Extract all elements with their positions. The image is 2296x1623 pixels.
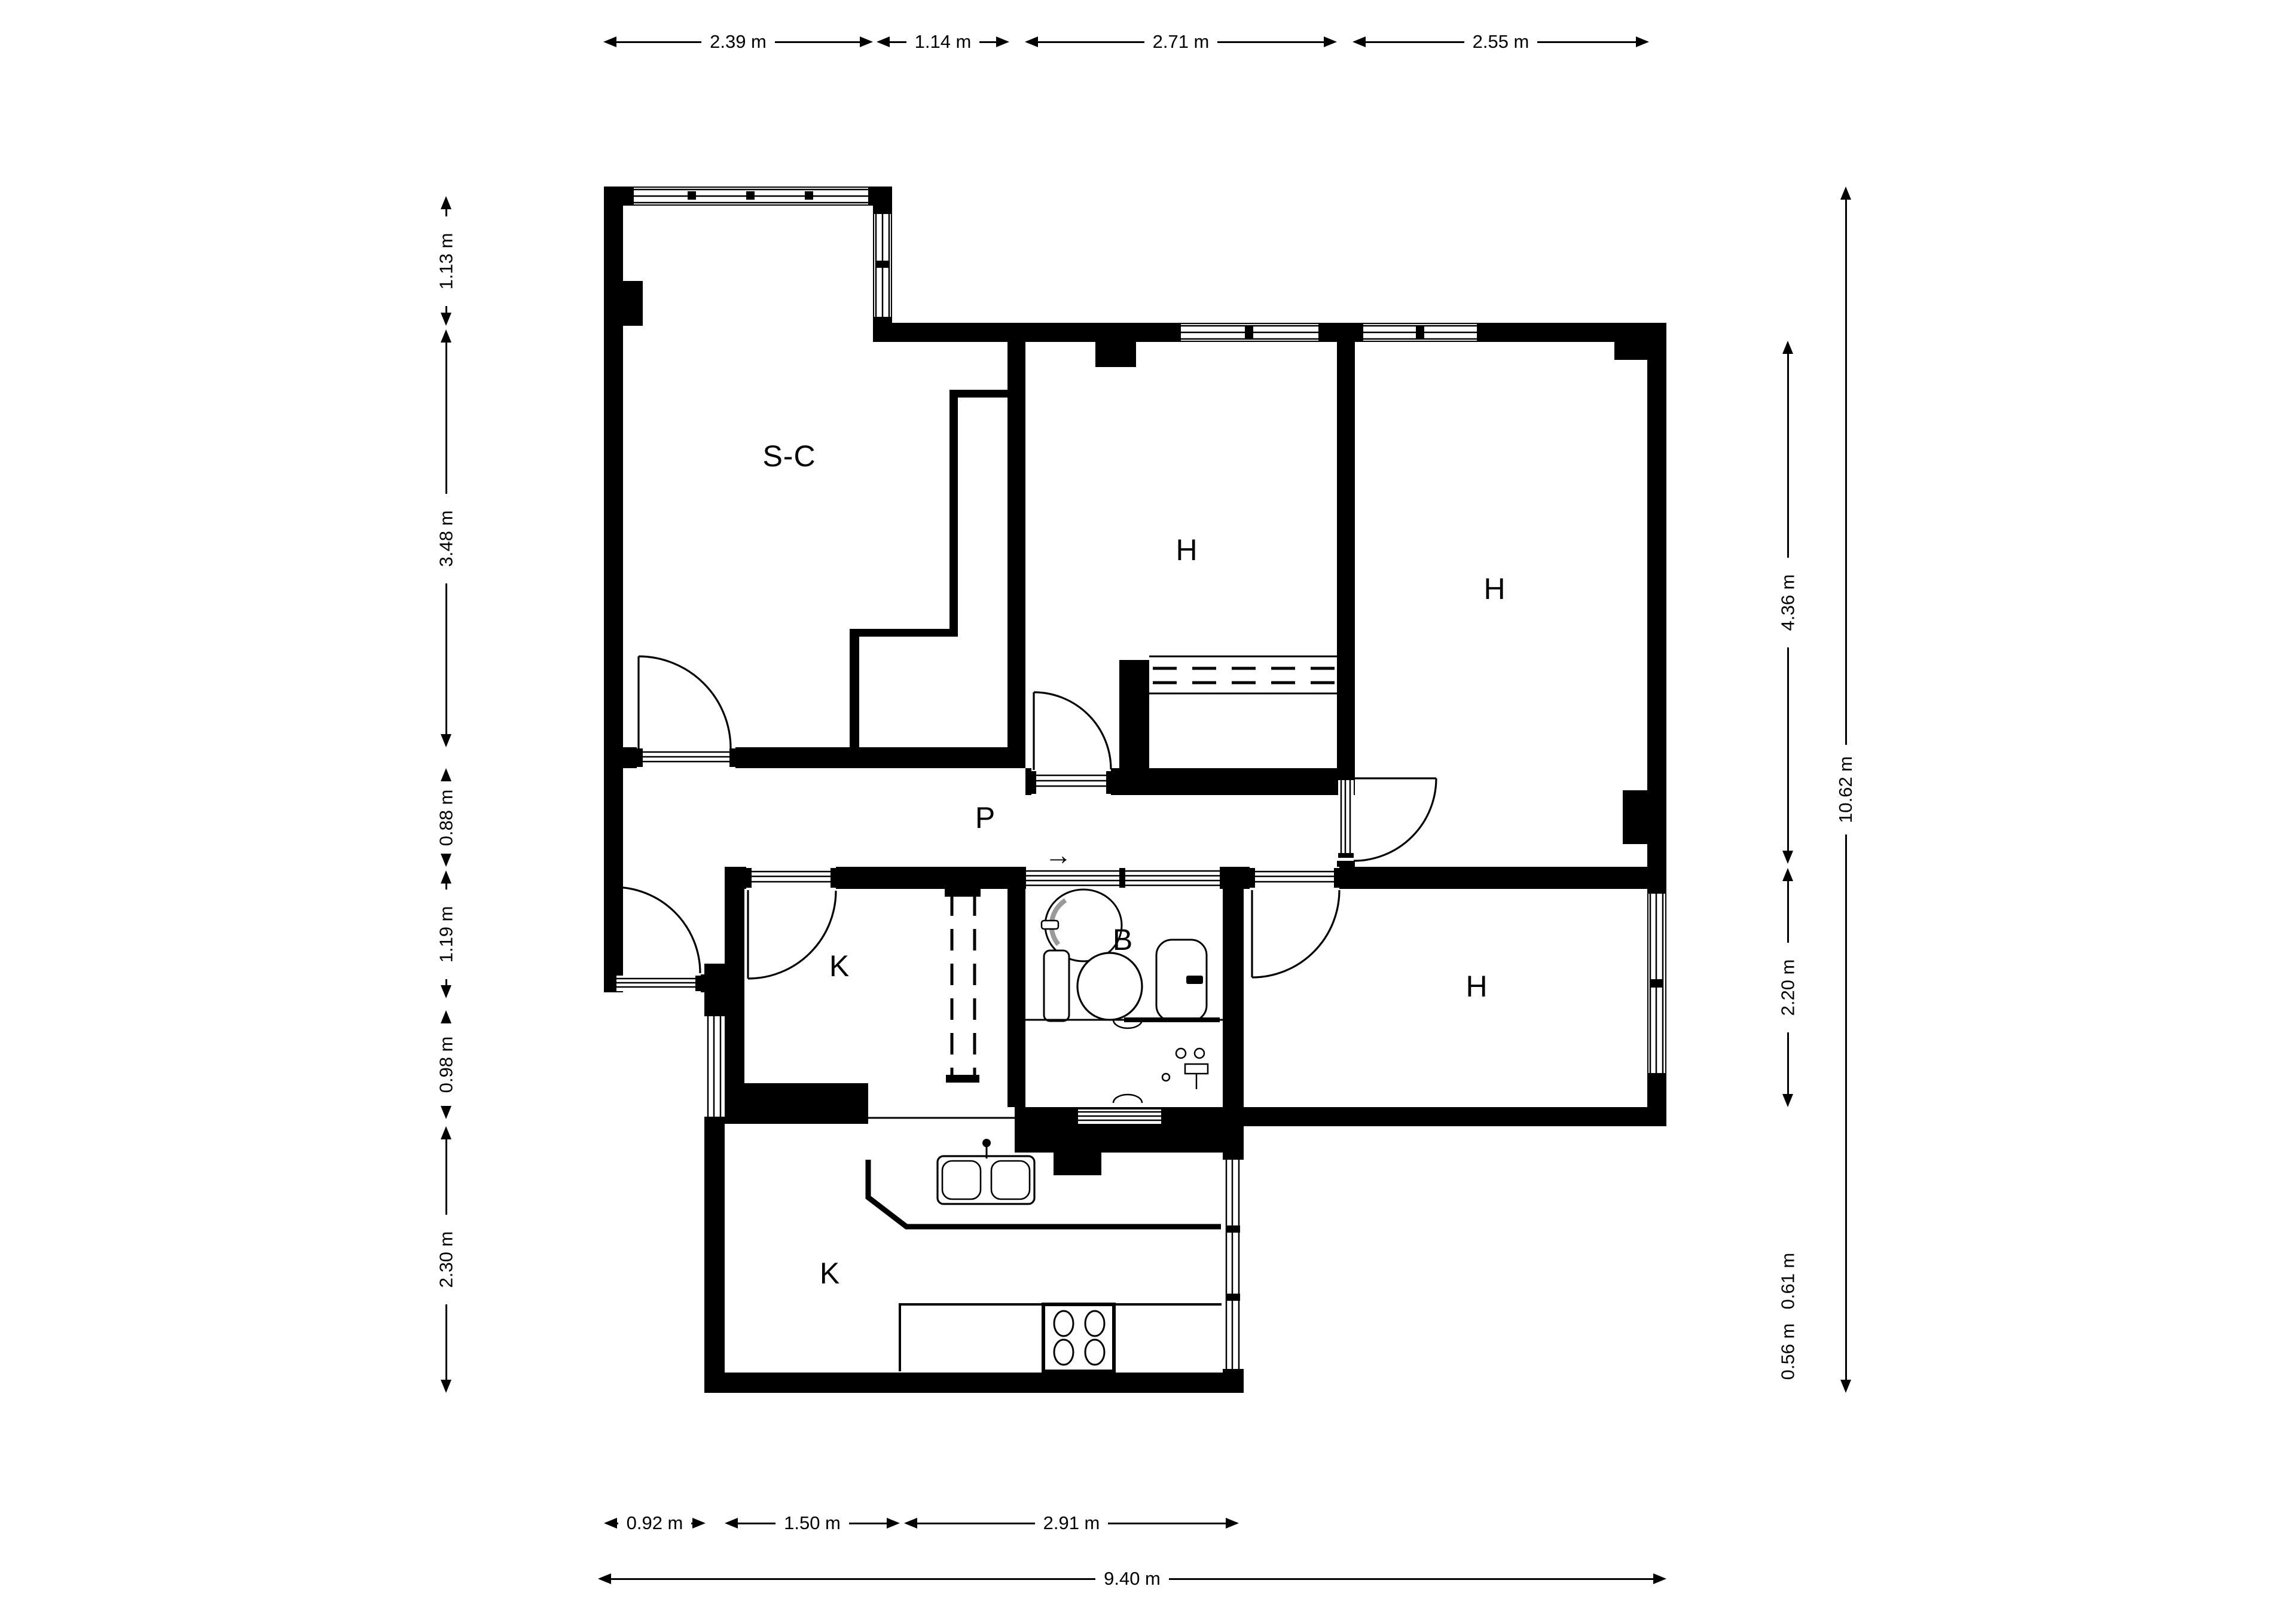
- walls: [604, 187, 1666, 1393]
- bathroom-fixtures: [1025, 890, 1223, 1103]
- dim-left-6: 2.30 m: [435, 1126, 457, 1393]
- dim-left-5: 0.98 m: [435, 1010, 457, 1119]
- dim-top-4: 2.55 m: [1352, 31, 1649, 53]
- room-label-bedroom2: H: [1483, 571, 1506, 606]
- counter-edge: [868, 1160, 1221, 1227]
- dim-top-2: 1.14 m: [877, 31, 1009, 53]
- dim-top-3: 2.71 m: [1025, 31, 1337, 53]
- dim-bottom-2: 1.50 m: [725, 1512, 900, 1534]
- dim-right-4: 0.56 m: [1777, 1313, 1799, 1390]
- dim-right-1: 4.36 m: [1777, 341, 1799, 864]
- bathtub-icon: [1025, 1020, 1223, 1103]
- room-label-bedroom3: H: [1465, 969, 1488, 1004]
- dim-right-overall: 10.62 m: [1835, 187, 1857, 1393]
- floor-plan-sheet: S-C H H H P K B K → 2.39 m 1.14 m 2.71 m…: [0, 0, 2296, 1623]
- dim-left-4: 1.19 m: [435, 870, 457, 998]
- toilet-icon: [1044, 950, 1069, 1021]
- dim-bottom-overall: 9.40 m: [598, 1568, 1666, 1590]
- room-label-hall: P: [975, 800, 996, 835]
- dim-bottom-1: 0.92 m: [604, 1512, 706, 1534]
- room-label-bathroom: B: [1113, 922, 1133, 957]
- dim-left-3: 0.88 m: [435, 768, 457, 867]
- kitchen-fixtures: [868, 1139, 1222, 1371]
- floor-plan-drawing: [0, 0, 2296, 1623]
- dim-top-1: 2.39 m: [603, 31, 873, 53]
- room-label-storage: K: [829, 949, 850, 983]
- room-label-kitchen: K: [820, 1256, 840, 1291]
- dim-right-2: 2.20 m: [1777, 868, 1799, 1107]
- dim-right-3: 0.61 m: [1777, 1242, 1799, 1320]
- stove-icon: [1043, 1304, 1114, 1371]
- room-label-bedroom1: H: [1176, 533, 1198, 567]
- room-label-living: S-C: [762, 439, 816, 473]
- dim-left-2: 3.48 m: [435, 329, 457, 747]
- dim-bottom-3: 2.91 m: [904, 1512, 1239, 1534]
- entry-direction-arrow-icon: →: [1045, 841, 1072, 869]
- dim-left-1: 1.13 m: [435, 196, 457, 326]
